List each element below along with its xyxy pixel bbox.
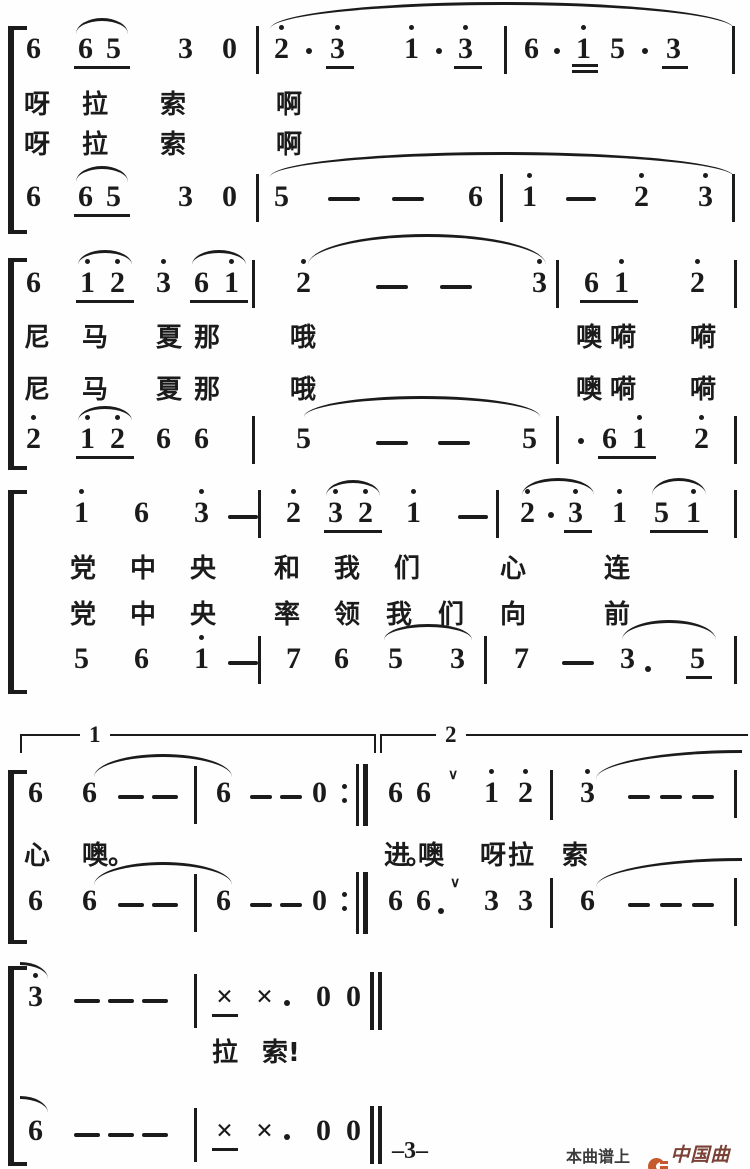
beam-underline xyxy=(454,66,482,69)
beam-underline xyxy=(598,456,656,459)
barline xyxy=(504,26,507,74)
note-digit: 6 xyxy=(334,644,349,674)
octave-dot xyxy=(301,259,306,264)
watermark-prefix: 本曲谱上传于 xyxy=(566,1143,642,1169)
note-digit: 6 xyxy=(28,886,43,916)
note-digit: 0 xyxy=(312,778,327,808)
octave-dot xyxy=(619,259,624,264)
note-digit: 3 xyxy=(620,644,635,674)
note-digit: 5 xyxy=(610,34,625,64)
duration-dash xyxy=(438,441,470,445)
final-barline xyxy=(370,972,382,1030)
lyric-text: 索! xyxy=(262,1040,300,1066)
lyric-text: 索 xyxy=(160,132,186,158)
duration-dash xyxy=(250,795,272,799)
duration-dash xyxy=(118,795,144,799)
lyric-text: 嗬 xyxy=(610,377,636,403)
lyric-text: 噢 xyxy=(576,377,602,403)
note-digit: 3 xyxy=(178,34,193,64)
duration-dash xyxy=(280,795,302,799)
note-digit: 0 xyxy=(222,34,237,64)
duration-dash xyxy=(328,197,360,201)
note-digit: 1 xyxy=(686,498,701,528)
note-digit: 1 xyxy=(632,424,647,454)
lyric-text: 嗬 xyxy=(610,325,636,351)
note-digit: 7 xyxy=(286,644,301,674)
lyric-text: 夏 xyxy=(156,377,182,403)
breath-mark: ∨ xyxy=(450,874,460,891)
augmentation-dot xyxy=(306,48,312,54)
duration-dash xyxy=(228,661,258,665)
duration-dash xyxy=(118,903,144,907)
repeat-end-barline xyxy=(356,764,368,826)
note-digit: 7 xyxy=(514,644,529,674)
lyric-text: 索 xyxy=(562,843,588,869)
lyric-text: 央 xyxy=(190,556,216,582)
barline xyxy=(194,1108,197,1162)
note-digit: 2 xyxy=(110,268,125,298)
lyric-text: 连 xyxy=(604,556,630,582)
lyric-text: 哦 xyxy=(290,325,316,351)
beam-underline xyxy=(76,456,134,459)
barline xyxy=(258,490,261,538)
note-digit: × xyxy=(216,982,233,1012)
duration-dash xyxy=(692,903,714,907)
beam-underline xyxy=(662,66,688,69)
barline xyxy=(484,636,487,684)
lyric-text: 们 xyxy=(394,556,420,582)
note-digit: 3 xyxy=(178,182,193,212)
beam-underline xyxy=(212,1148,238,1151)
lyric-text: 呀 xyxy=(480,843,506,869)
duration-dash xyxy=(692,795,714,799)
lyric-text: 嗬 xyxy=(690,325,716,351)
slur xyxy=(192,250,246,265)
duration-dash xyxy=(152,903,178,907)
augmentation-dot xyxy=(554,48,560,54)
lyric-text: 我 xyxy=(334,556,360,582)
note-digit: 1 xyxy=(80,268,95,298)
system-bracket xyxy=(8,258,27,470)
note-digit: 6 xyxy=(26,182,41,212)
lyric-text: 那 xyxy=(194,377,220,403)
note-digit: 2 xyxy=(520,498,535,528)
note-digit: 6 xyxy=(468,182,483,212)
lyric-text: 索 xyxy=(160,92,186,118)
octave-dot xyxy=(699,415,704,420)
lyric-text: 呀 xyxy=(24,132,50,158)
slur xyxy=(304,396,540,417)
duration-dash xyxy=(74,1133,100,1137)
note-digit: 6 xyxy=(416,886,431,916)
lyric-text: 尼 xyxy=(24,377,50,403)
augmentation-dot xyxy=(284,1134,290,1140)
note-digit: 3 xyxy=(458,34,473,64)
octave-dot xyxy=(411,489,416,494)
barline xyxy=(258,636,261,684)
beam-underline xyxy=(212,1014,238,1017)
augmentation-dot xyxy=(645,666,651,672)
duration-dash xyxy=(566,197,596,201)
barline xyxy=(734,878,737,926)
octave-dot xyxy=(79,489,84,494)
site-logo-icon xyxy=(648,1157,664,1169)
note-digit: 5 xyxy=(690,644,705,674)
lyric-text: 夏 xyxy=(156,325,182,351)
note-digit: 0 xyxy=(346,982,361,1012)
lyric-text: 啊 xyxy=(276,92,302,118)
augmentation-dot xyxy=(436,48,442,54)
octave-dot xyxy=(523,769,528,774)
note-digit: 6 xyxy=(580,886,595,916)
augmentation-dot xyxy=(578,438,584,444)
note-digit: 6 xyxy=(78,34,93,64)
lyric-text: 中 xyxy=(130,602,156,628)
slur xyxy=(94,754,232,777)
lyric-text: 噢 xyxy=(82,843,108,869)
note-digit: 2 xyxy=(110,424,125,454)
sheet-music-page: 6653023136153呀拉索啊呀拉索啊6653056123612361236… xyxy=(0,0,750,1169)
duration-dash xyxy=(228,515,258,519)
note-digit: 2 xyxy=(694,424,709,454)
volta-number: 2 xyxy=(436,722,466,748)
note-digit: 1 xyxy=(404,34,419,64)
lyric-text: 拉 xyxy=(82,132,108,158)
note-digit: 6 xyxy=(82,778,97,808)
beam-underline xyxy=(74,214,130,217)
octave-dot xyxy=(489,769,494,774)
note-digit: 3 xyxy=(698,182,713,212)
beam-underline xyxy=(564,530,592,533)
beam-underline xyxy=(572,70,598,73)
volta-bracket: 1 xyxy=(20,734,376,753)
note-digit: 6 xyxy=(388,778,403,808)
beam-underline xyxy=(76,300,134,303)
note-digit: 0 xyxy=(222,182,237,212)
note-digit: 6 xyxy=(524,34,539,64)
note-digit: 3 xyxy=(518,886,533,916)
lyric-text: 央 xyxy=(190,602,216,628)
barline xyxy=(194,874,197,932)
lyric-text: 拉 xyxy=(508,843,534,869)
note-digit: 2 xyxy=(26,424,41,454)
note-digit: 1 xyxy=(224,268,239,298)
duration-dash xyxy=(142,1133,168,1137)
note-digit: 5 xyxy=(74,644,89,674)
duration-dash xyxy=(74,999,100,1003)
note-digit: 3 xyxy=(568,498,583,528)
volta-number: 1 xyxy=(80,722,110,748)
lyric-text: 嗬 xyxy=(690,377,716,403)
slur xyxy=(78,406,132,421)
volta-bracket: 2 xyxy=(380,734,748,753)
duration-dash xyxy=(628,903,650,907)
lyric-text: 哦 xyxy=(290,377,316,403)
note-digit: 3 xyxy=(194,498,209,528)
barline xyxy=(734,770,737,818)
octave-dot xyxy=(637,415,642,420)
lyric-text: 心 xyxy=(24,843,50,869)
note-digit: 6 xyxy=(194,424,209,454)
slur xyxy=(270,2,734,29)
note-digit: 0 xyxy=(312,886,327,916)
beam-underline xyxy=(686,676,712,679)
augmentation-dot xyxy=(284,1000,290,1006)
note-digit: 3 xyxy=(532,268,547,298)
slur xyxy=(78,250,132,265)
lyric-text: 领 xyxy=(334,602,360,628)
note-digit: 1 xyxy=(576,34,591,64)
lyric-text: 噢 xyxy=(418,843,444,869)
octave-dot xyxy=(33,973,38,978)
barline xyxy=(556,260,559,308)
lyric-text: 中 xyxy=(130,556,156,582)
duration-dash xyxy=(376,441,408,445)
barline xyxy=(732,174,735,222)
note-digit: 3 xyxy=(328,498,343,528)
barline xyxy=(194,974,197,1028)
barline xyxy=(732,26,735,74)
slur xyxy=(652,478,706,495)
note-digit: 2 xyxy=(634,182,649,212)
duration-dash xyxy=(108,999,134,1003)
beam-underline xyxy=(572,64,598,67)
beam-underline xyxy=(326,66,354,69)
note-digit: 6 xyxy=(28,1116,43,1146)
barline xyxy=(252,416,255,464)
beam-underline xyxy=(74,66,130,69)
note-digit: 2 xyxy=(358,498,373,528)
note-digit: 6 xyxy=(82,886,97,916)
note-digit: 0 xyxy=(316,1116,331,1146)
octave-dot xyxy=(695,259,700,264)
note-digit: 3 xyxy=(330,34,345,64)
note-digit: 5 xyxy=(274,182,289,212)
lyric-text: 我 xyxy=(386,602,412,628)
lyric-text: 马 xyxy=(82,377,108,403)
note-digit: 1 xyxy=(74,498,89,528)
note-digit: × xyxy=(216,1116,233,1146)
lyric-text: 那 xyxy=(194,325,220,351)
note-digit: 6 xyxy=(134,498,149,528)
note-digit: × xyxy=(256,982,273,1012)
augmentation-dot xyxy=(438,908,444,914)
note-digit: 3 xyxy=(484,886,499,916)
watermark-site-name: 中国曲谱网 xyxy=(670,1140,750,1169)
augmentation-dot xyxy=(642,48,648,54)
octave-dot xyxy=(291,489,296,494)
note-digit: 1 xyxy=(484,778,499,808)
note-digit: 0 xyxy=(316,982,331,1012)
barline xyxy=(550,770,553,820)
barline xyxy=(734,490,737,538)
slur xyxy=(308,234,546,265)
note-digit: 6 xyxy=(602,424,617,454)
lyric-text: 向 xyxy=(500,602,526,628)
slur-continuation-out xyxy=(596,858,742,887)
slur-continuation-out xyxy=(596,750,742,779)
barline xyxy=(734,260,737,308)
lyric-text: 啊 xyxy=(276,132,302,158)
beam-underline xyxy=(324,530,382,533)
note-digit: 2 xyxy=(274,34,289,64)
octave-dot xyxy=(585,769,590,774)
lyric-text: 呀 xyxy=(24,92,50,118)
duration-dash xyxy=(660,795,682,799)
barline xyxy=(500,174,503,222)
note-digit: 6 xyxy=(134,644,149,674)
duration-dash xyxy=(280,903,302,907)
duration-dash xyxy=(440,285,472,289)
note-digit: 6 xyxy=(388,886,403,916)
note-digit: 6 xyxy=(216,886,231,916)
octave-dot xyxy=(161,259,166,264)
augmentation-dot xyxy=(548,512,554,518)
note-digit: 1 xyxy=(80,424,95,454)
page-number: –3– xyxy=(392,1138,428,1165)
beam-underline xyxy=(650,530,708,533)
duration-dash xyxy=(562,661,594,665)
note-digit: 1 xyxy=(522,182,537,212)
duration-dash xyxy=(250,903,272,907)
note-digit: 3 xyxy=(666,34,681,64)
repeat-end-barline xyxy=(356,872,368,934)
lyric-text: 心 xyxy=(500,556,526,582)
note-digit: 2 xyxy=(286,498,301,528)
note-digit: 0 xyxy=(346,1116,361,1146)
watermark: 本曲谱上传于 中国曲谱网 xyxy=(566,1140,750,1169)
slur xyxy=(622,620,716,640)
lyric-text: 拉 xyxy=(82,92,108,118)
duration-dash xyxy=(152,795,178,799)
note-digit: 5 xyxy=(522,424,537,454)
note-digit: 1 xyxy=(406,498,421,528)
lyric-text: 噢 xyxy=(576,325,602,351)
note-digit: 5 xyxy=(654,498,669,528)
note-digit: 2 xyxy=(518,778,533,808)
note-digit: × xyxy=(256,1116,273,1146)
slur xyxy=(326,480,380,496)
note-digit: 1 xyxy=(612,498,627,528)
note-digit: 1 xyxy=(614,268,629,298)
note-digit: 6 xyxy=(194,268,209,298)
lyric-text: 拉 xyxy=(212,1040,238,1066)
duration-dash xyxy=(628,795,650,799)
note-digit: 6 xyxy=(584,268,599,298)
slur xyxy=(76,18,128,34)
barline xyxy=(734,416,737,464)
duration-dash xyxy=(392,197,424,201)
octave-dot xyxy=(199,635,204,640)
octave-dot xyxy=(617,489,622,494)
barline xyxy=(256,26,259,74)
note-digit: 6 xyxy=(28,778,43,808)
lyric-text: 马 xyxy=(82,325,108,351)
duration-dash xyxy=(458,515,488,519)
note-digit: 5 xyxy=(388,644,403,674)
note-digit: 6 xyxy=(416,778,431,808)
note-digit: 3 xyxy=(580,778,595,808)
octave-dot xyxy=(31,415,36,420)
barline xyxy=(194,766,197,824)
beam-underline xyxy=(580,300,638,303)
barline xyxy=(496,490,499,538)
note-digit: 6 xyxy=(78,182,93,212)
note-digit: 3 xyxy=(28,982,43,1012)
lyric-text: 前 xyxy=(604,602,630,628)
slur xyxy=(76,166,128,182)
slur-continuation-in xyxy=(20,1096,48,1113)
note-digit: 2 xyxy=(296,268,311,298)
note-digit: 6 xyxy=(156,424,171,454)
lyric-text: 尼 xyxy=(24,325,50,351)
note-digit: 5 xyxy=(296,424,311,454)
barline xyxy=(252,260,255,308)
barline xyxy=(256,174,259,222)
lyric-text: 和 xyxy=(274,556,300,582)
duration-dash xyxy=(108,1133,134,1137)
note-digit: 5 xyxy=(106,34,121,64)
barline xyxy=(556,416,559,464)
note-digit: 5 xyxy=(106,182,121,212)
final-barline xyxy=(370,1106,382,1164)
note-digit: 2 xyxy=(690,268,705,298)
note-digit: 6 xyxy=(26,34,41,64)
note-digit: 3 xyxy=(156,268,171,298)
system-bracket xyxy=(8,490,27,694)
duration-dash xyxy=(142,999,168,1003)
barline xyxy=(550,878,553,928)
note-digit: 6 xyxy=(26,268,41,298)
duration-dash xyxy=(660,903,682,907)
duration-dash xyxy=(376,285,408,289)
note-digit: 1 xyxy=(194,644,209,674)
note-digit: 3 xyxy=(450,644,465,674)
lyric-text: 党 xyxy=(70,556,96,582)
octave-dot xyxy=(199,489,204,494)
breath-mark: ∨ xyxy=(448,766,458,783)
slur xyxy=(522,478,594,495)
barline xyxy=(734,636,737,684)
lyric-text: 党 xyxy=(70,602,96,628)
note-digit: 6 xyxy=(216,778,231,808)
system-bracket xyxy=(8,966,27,1166)
beam-underline xyxy=(190,300,248,303)
lyric-text: 率 xyxy=(274,602,300,628)
slur xyxy=(270,152,734,177)
